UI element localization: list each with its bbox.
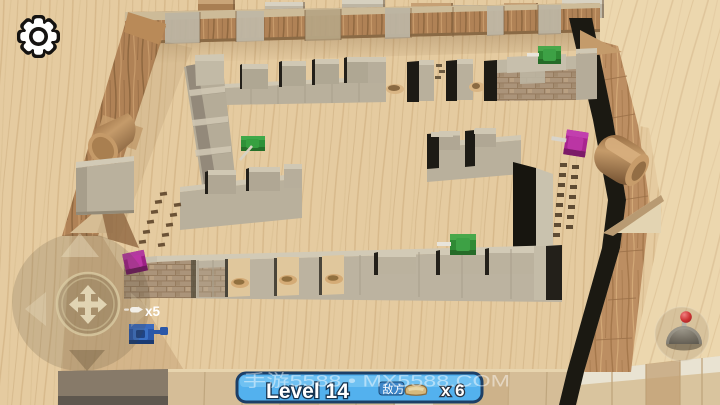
- svg-text:手游5588 • MX5588.COM: 手游5588 • MX5588.COM: [243, 372, 510, 391]
- svg-text:x5: x5: [145, 304, 161, 319]
